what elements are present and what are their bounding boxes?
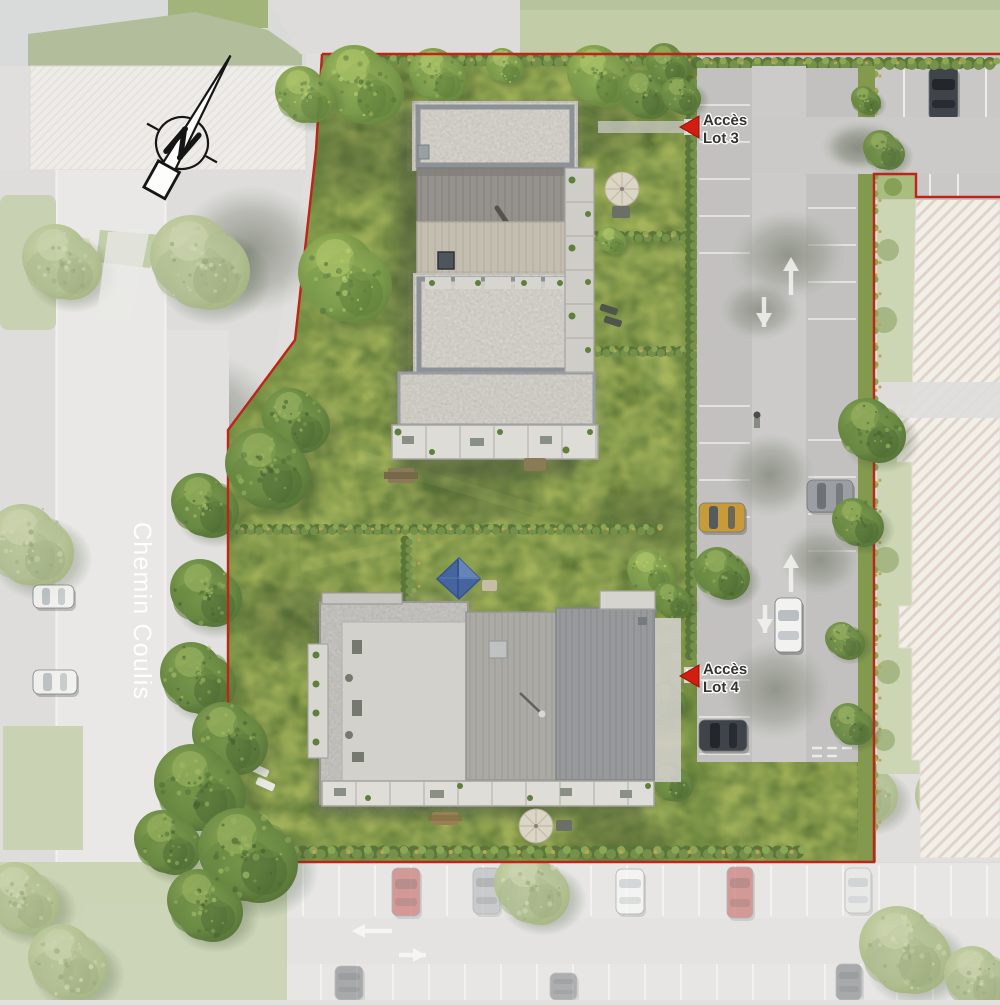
svg-text:Lot 4: Lot 4 xyxy=(703,679,739,696)
svg-text:Accès: Accès xyxy=(703,112,747,129)
svg-text:Lot 3: Lot 3 xyxy=(703,130,739,147)
svg-text:Chemin Coulis: Chemin Coulis xyxy=(128,522,156,700)
svg-text:Accès: Accès xyxy=(703,661,747,678)
